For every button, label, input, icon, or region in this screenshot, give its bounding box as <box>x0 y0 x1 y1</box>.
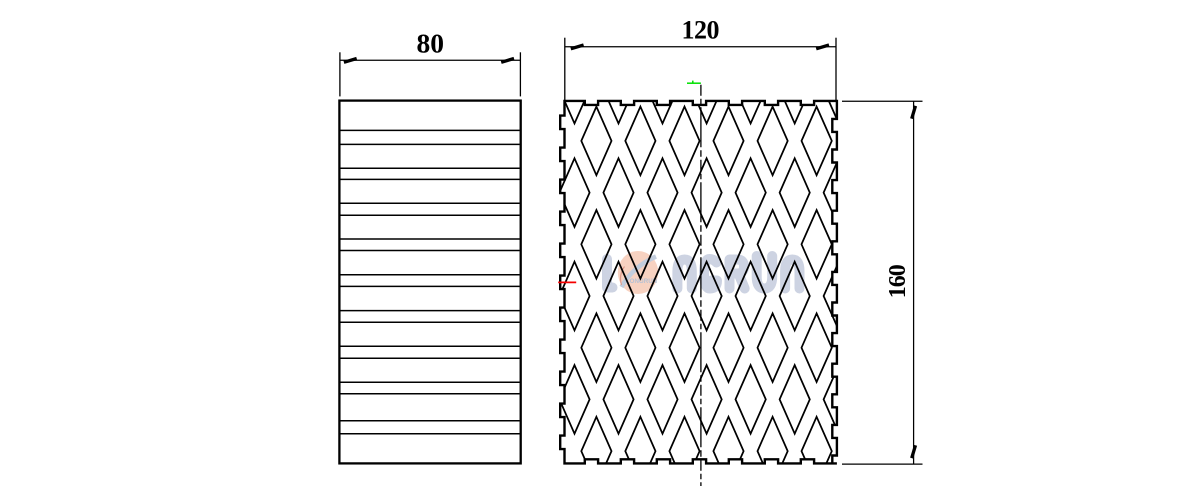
svg-text:160: 160 <box>885 264 911 298</box>
svg-text:120: 120 <box>682 16 720 45</box>
svg-text:80: 80 <box>417 28 445 59</box>
